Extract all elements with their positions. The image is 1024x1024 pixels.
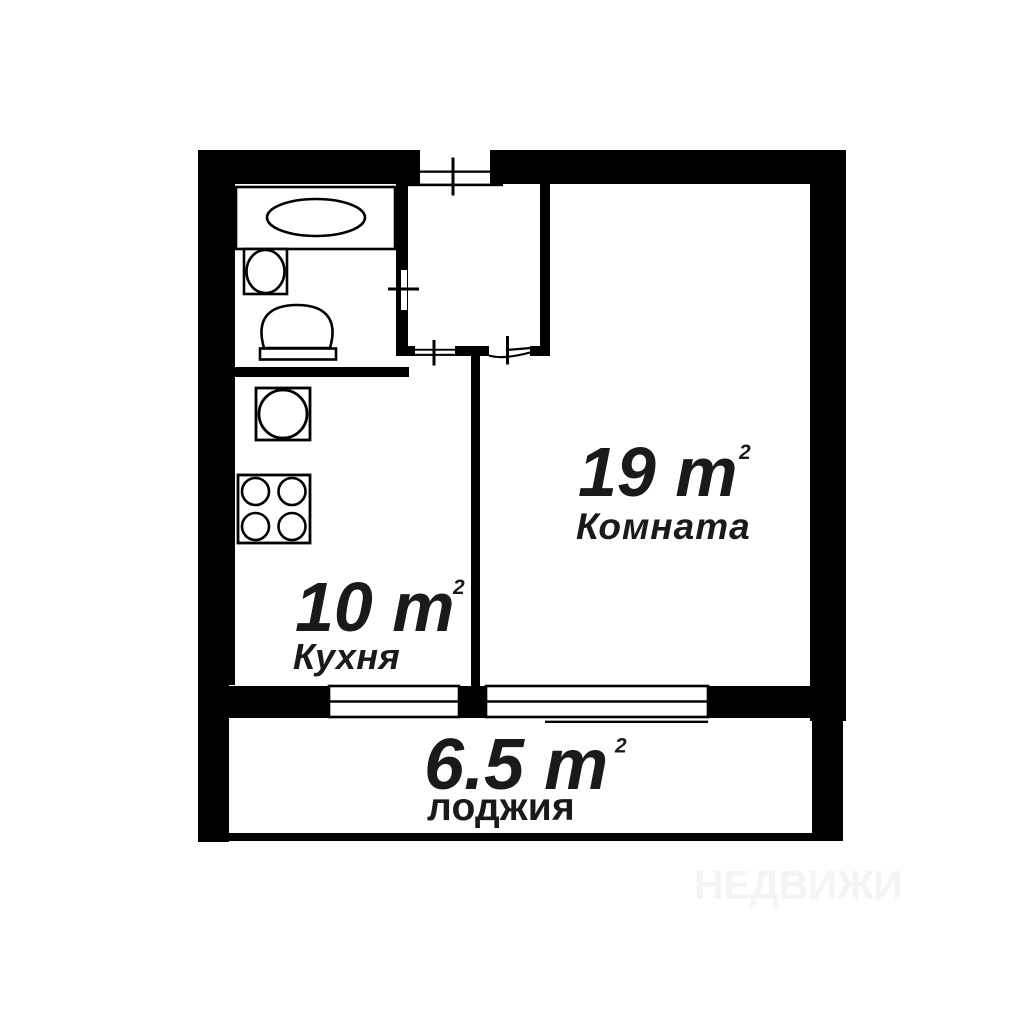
svg-text:19 m: 19 m bbox=[578, 433, 738, 511]
svg-text:лоджия: лоджия bbox=[427, 786, 575, 829]
svg-text:2: 2 bbox=[738, 441, 751, 464]
svg-text:2: 2 bbox=[614, 735, 627, 758]
svg-text:2: 2 bbox=[452, 576, 465, 599]
svg-text:Комната: Комната bbox=[576, 506, 751, 547]
svg-text:Кухня: Кухня bbox=[293, 636, 400, 677]
svg-text:10 m: 10 m bbox=[295, 568, 455, 646]
svg-text:НЕДВИЖИ: НЕДВИЖИ bbox=[694, 862, 902, 908]
